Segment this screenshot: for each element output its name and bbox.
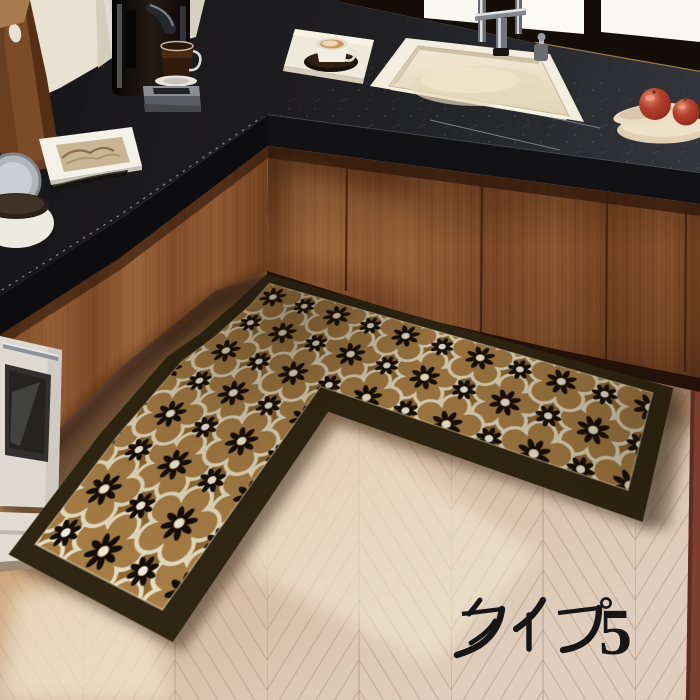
svg-text:5: 5 — [599, 596, 632, 669]
